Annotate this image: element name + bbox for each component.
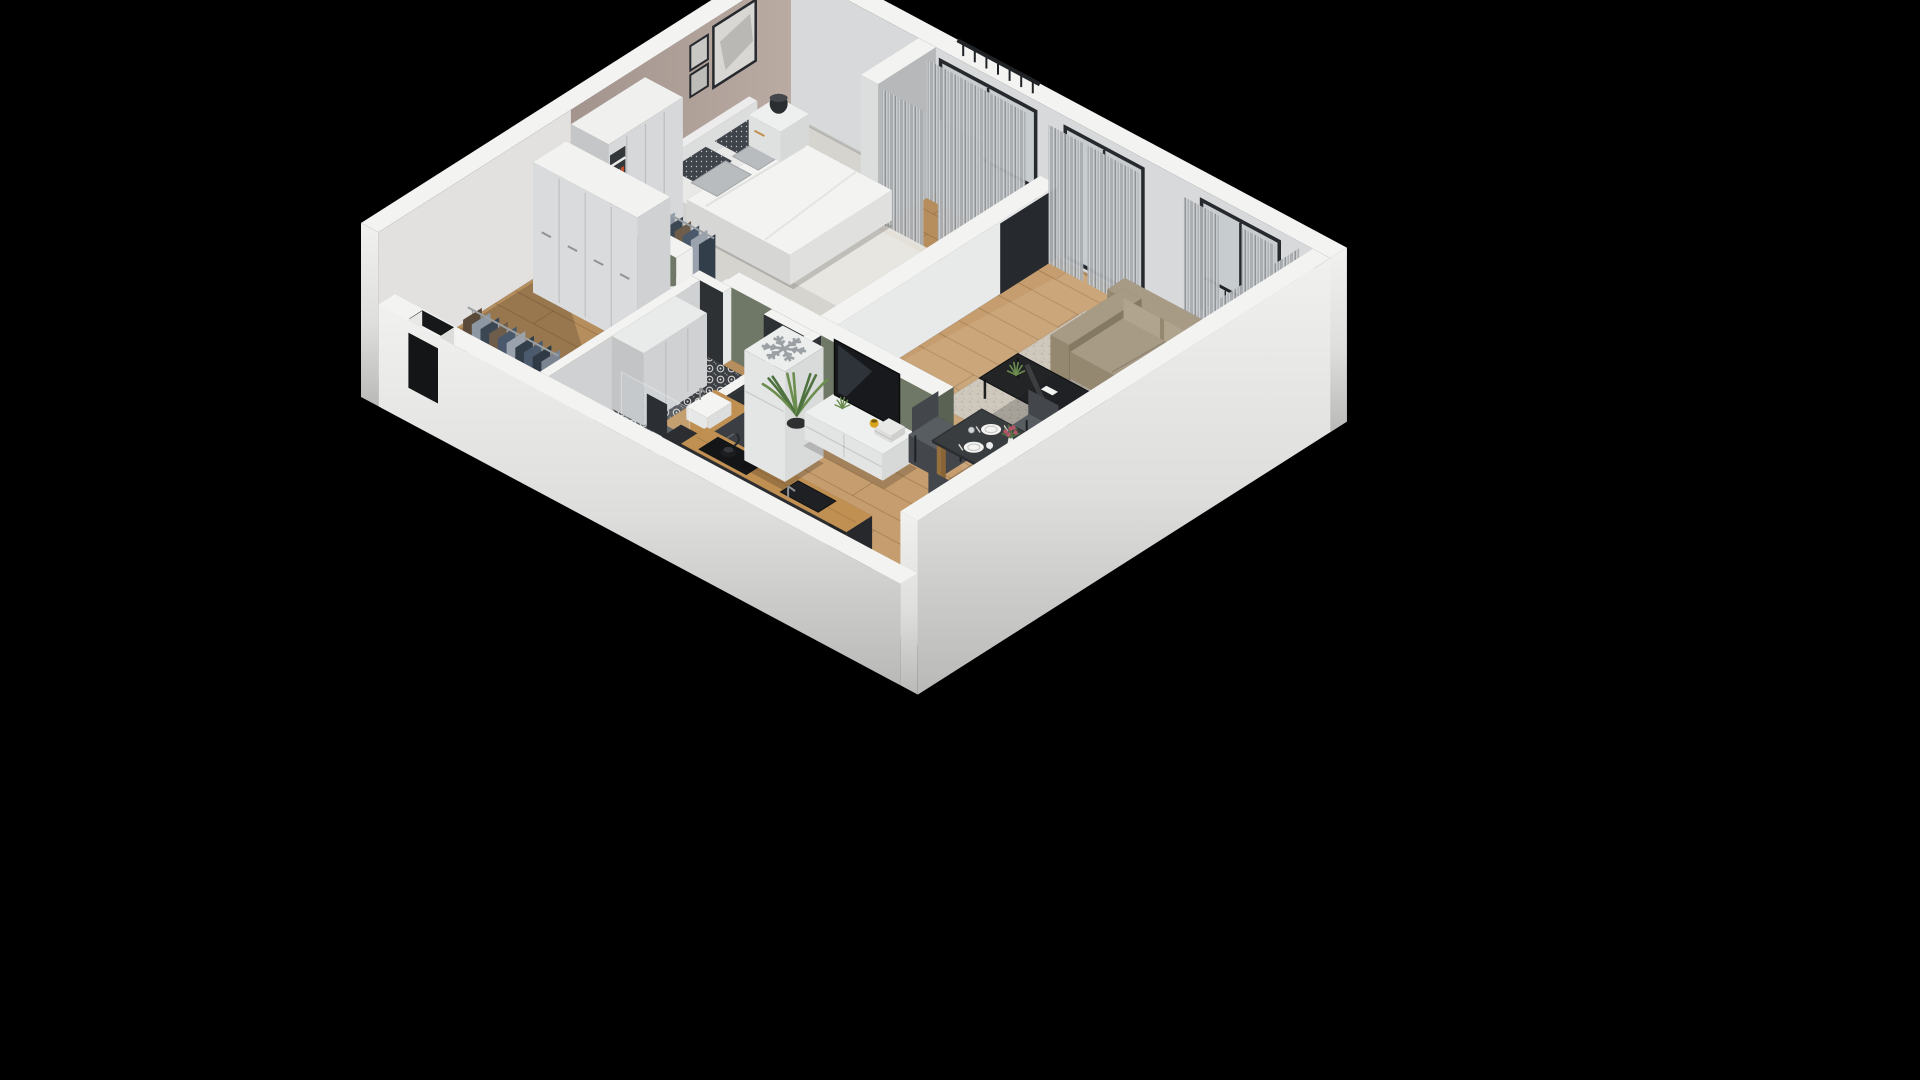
picture-frame-small [690, 35, 708, 97]
table-lamp [770, 94, 788, 114]
wine-glass [969, 427, 975, 433]
render-canvas [0, 0, 1920, 1080]
fridge [739, 326, 824, 490]
apartment-3d-floor-plan [0, 0, 1920, 1080]
milk-jug [986, 442, 993, 449]
